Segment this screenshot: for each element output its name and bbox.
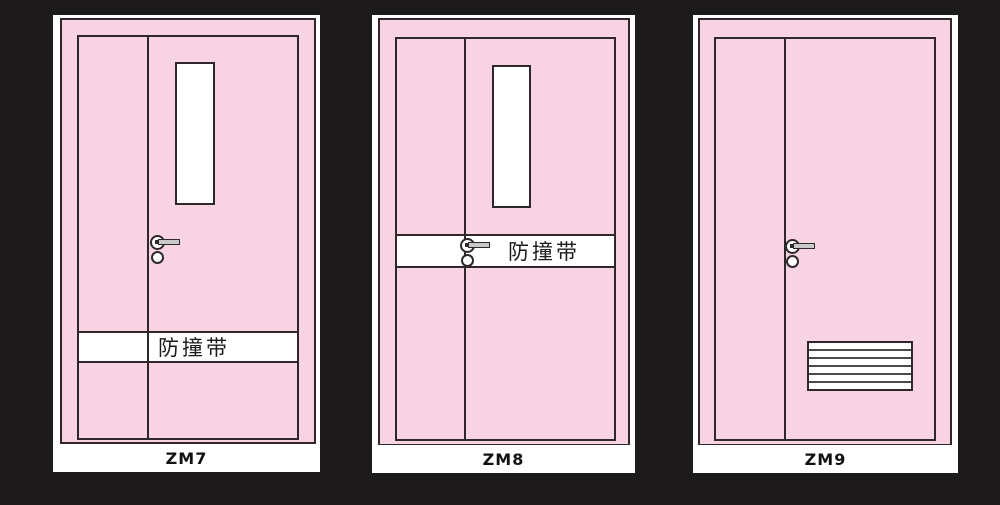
louver-slat bbox=[809, 381, 911, 383]
door-handle-icon bbox=[150, 235, 190, 265]
door-handle-icon bbox=[460, 238, 500, 268]
louver-slat bbox=[809, 373, 911, 375]
label-strip: ZM8 bbox=[372, 445, 635, 473]
louver-slat bbox=[809, 357, 911, 359]
vision-window bbox=[492, 65, 531, 208]
louver-vent bbox=[807, 341, 913, 391]
door-panel-zm8: 防撞带 ZM8 bbox=[372, 15, 635, 473]
impact-band-label: 防撞带 bbox=[158, 333, 230, 361]
impact-band-stile bbox=[147, 333, 149, 361]
label-strip: ZM9 bbox=[693, 445, 958, 473]
door-handle-icon bbox=[785, 239, 825, 269]
louver-slat bbox=[809, 365, 911, 367]
label-strip: ZM7 bbox=[53, 444, 320, 472]
impact-band-label: 防撞带 bbox=[508, 236, 580, 266]
impact-band: 防撞带 bbox=[395, 234, 616, 268]
door-center-stile bbox=[147, 35, 149, 440]
door-panel-zm7: 防撞带 ZM7 bbox=[53, 15, 320, 472]
lock-cylinder-icon bbox=[786, 255, 799, 268]
door-code-label: ZM9 bbox=[805, 450, 847, 469]
louver-slat bbox=[809, 349, 911, 351]
lock-cylinder-icon bbox=[461, 254, 474, 267]
drawing-stage: 防撞带 ZM7 防撞带 ZM8 bbox=[0, 0, 1000, 505]
lock-cylinder-icon bbox=[151, 251, 164, 264]
impact-band: 防撞带 bbox=[77, 331, 299, 363]
door-code-label: ZM8 bbox=[483, 450, 525, 469]
handle-lever-icon bbox=[793, 243, 815, 249]
door-panel-zm9: ZM9 bbox=[693, 15, 958, 473]
handle-lever-icon bbox=[158, 239, 180, 245]
door-code-label: ZM7 bbox=[166, 449, 208, 468]
vision-window bbox=[175, 62, 215, 205]
handle-lever-icon bbox=[468, 242, 490, 248]
